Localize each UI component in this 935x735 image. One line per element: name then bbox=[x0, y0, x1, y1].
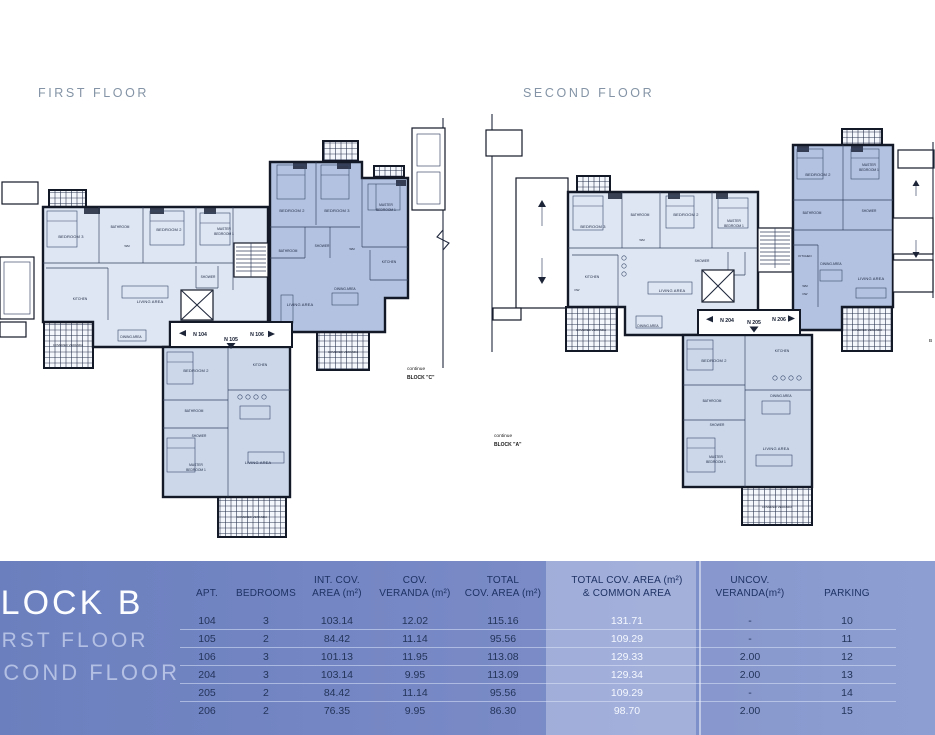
adjacent-structures-right bbox=[412, 118, 449, 368]
partial-label: B bbox=[929, 338, 932, 344]
room-label: BEDROOM 2 bbox=[279, 208, 305, 213]
table-cell: 131.71 bbox=[552, 608, 702, 630]
adjacent-structures-left bbox=[486, 114, 568, 352]
room-label: MASTER bbox=[862, 163, 876, 167]
veranda-hatch bbox=[374, 166, 404, 177]
table-cell: 113.08 bbox=[454, 648, 552, 666]
room-label: DINING AREA bbox=[334, 287, 356, 291]
room-label: BEDROOM 2 bbox=[183, 368, 209, 373]
room-label: LIVING AREA bbox=[137, 299, 164, 304]
room-label: MASTER bbox=[727, 219, 741, 223]
svg-text:BLOCK "C": BLOCK "C" bbox=[407, 375, 435, 381]
room-label: BATHROOM bbox=[279, 249, 298, 253]
summary-table-head-row: APT.BEDROOMSINT. COV.AREA (m²)COV.VERAND… bbox=[180, 574, 896, 608]
room-label: WM bbox=[349, 247, 355, 251]
room-label: WM bbox=[639, 238, 645, 242]
table-cell: 9.95 bbox=[376, 702, 454, 720]
apartment-entry-label: N 104 bbox=[193, 332, 207, 338]
veranda-hatch bbox=[49, 190, 86, 207]
table-cell: 98.70 bbox=[552, 702, 702, 720]
room-label: BATHROOM bbox=[803, 211, 822, 215]
table-cell: 3 bbox=[234, 608, 298, 630]
room-label: MASTER bbox=[709, 455, 723, 459]
room-label: BEDROOM 1 bbox=[859, 168, 879, 172]
table-cell: 2 bbox=[234, 684, 298, 702]
room-label: COVERED VERANDA bbox=[328, 350, 358, 354]
table-cell: 12.02 bbox=[376, 608, 454, 630]
room-label: BEDROOM 1 bbox=[186, 468, 206, 472]
room-label: COVERED VERANDA bbox=[53, 343, 83, 347]
table-cell: 84.42 bbox=[298, 684, 376, 702]
apartment-entry-label: N 105 bbox=[224, 337, 238, 343]
room-label: KITCHEN bbox=[798, 254, 811, 258]
room-label: SHOWER bbox=[201, 275, 216, 279]
column-header: UNCOV.VERANDA(m²) bbox=[702, 574, 798, 608]
room-label: COVERED VERANDA bbox=[237, 515, 267, 519]
veranda-hatch bbox=[323, 141, 358, 161]
table-row: 1043103.1412.02115.16131.71-10 bbox=[180, 608, 896, 630]
second-floor-title: SECOND FLOOR bbox=[523, 87, 654, 100]
room-label: BEDROOM 1 bbox=[214, 232, 234, 236]
apartment-206: BEDROOM 2 MASTER BEDROOM 1 BATHROOM SHOW… bbox=[793, 129, 893, 351]
apartment-entry-label: N 204 bbox=[720, 318, 734, 324]
column-header: TOTAL COV. AREA (m²)& COMMON AREA bbox=[552, 574, 702, 608]
column-header: PARKING bbox=[798, 574, 896, 608]
table-row: 205284.4211.1495.56109.29-14 bbox=[180, 684, 896, 702]
room-label: COVERED VERANDA bbox=[576, 328, 606, 332]
block-title: BLOCK B bbox=[0, 586, 143, 620]
adjacent-structures-right: B bbox=[893, 142, 934, 344]
table-row: 105284.4211.1495.56109.29-11 bbox=[180, 630, 896, 648]
summary-table: APT.BEDROOMSINT. COV.AREA (m²)COV.VERAND… bbox=[180, 574, 896, 719]
summary-band: BLOCK B FIRST FLOOR SECOND FLOOR APT.BED… bbox=[0, 561, 935, 735]
first-floor-plan: BEDROOM 3 BATHROOM WM BEDROOM 2 MASTER B… bbox=[0, 110, 470, 555]
table-cell: 15 bbox=[798, 702, 896, 720]
continue-note-block-a: continue BLOCK "A" bbox=[494, 433, 522, 448]
room-label: WM bbox=[802, 284, 808, 288]
second-floor-plan: continue BLOCK "A" BEDROOM 3 BATHROOM WM… bbox=[465, 110, 935, 555]
room-label: KITCHEN bbox=[73, 297, 88, 301]
room-label: BEDROOM 3 bbox=[324, 208, 350, 213]
table-cell: 2 bbox=[234, 630, 298, 648]
table-cell: 113.09 bbox=[454, 666, 552, 684]
room-label: LIVING AREA bbox=[245, 460, 272, 465]
apartment-entry-label: N 106 bbox=[250, 332, 264, 338]
table-cell: 106 bbox=[180, 648, 234, 666]
room-label: BEDROOM 1 bbox=[376, 208, 396, 212]
table-cell: 103.14 bbox=[298, 608, 376, 630]
column-header: APT. bbox=[180, 574, 234, 608]
table-cell: 129.34 bbox=[552, 666, 702, 684]
table-cell: 115.16 bbox=[454, 608, 552, 630]
first-floor-title: FIRST FLOOR bbox=[38, 87, 149, 100]
room-label: BEDROOM 2 bbox=[673, 212, 699, 217]
room-label: LIVING AREA bbox=[763, 446, 790, 451]
veranda-hatch bbox=[577, 176, 610, 192]
table-cell: 109.29 bbox=[552, 630, 702, 648]
room-label: BATHROOM bbox=[703, 399, 722, 403]
room-label: SHOWER bbox=[710, 423, 725, 427]
column-header: INT. COV.AREA (m²) bbox=[298, 574, 376, 608]
room-label: DW bbox=[575, 288, 580, 292]
column-header: COV.VERANDA (m²) bbox=[376, 574, 454, 608]
apartment-205: BEDROOM 2 KITCHEN BATHROOM SHOWER MASTER… bbox=[683, 335, 812, 525]
table-cell: - bbox=[702, 608, 798, 630]
room-label: BEDROOM 3 bbox=[58, 234, 84, 239]
room-label: BATHROOM bbox=[111, 225, 130, 229]
room-label: BEDROOM 2 bbox=[805, 172, 831, 177]
room-label: DW bbox=[803, 292, 808, 296]
table-cell: 204 bbox=[180, 666, 234, 684]
column-header: BEDROOMS bbox=[234, 574, 298, 608]
table-cell: 13 bbox=[798, 666, 896, 684]
adjacent-structures-left bbox=[0, 182, 38, 337]
svg-text:continue: continue bbox=[407, 366, 425, 372]
table-cell: 95.56 bbox=[454, 684, 552, 702]
summary-floor-second: SECOND FLOOR bbox=[0, 662, 180, 684]
room-label: KITCHEN bbox=[775, 349, 790, 353]
room-label: BATHROOM bbox=[185, 409, 204, 413]
summary-floor-first: FIRST FLOOR bbox=[0, 630, 148, 651]
table-cell: 101.13 bbox=[298, 648, 376, 666]
room-label: BEDROOM 1 bbox=[724, 224, 744, 228]
table-cell: 11 bbox=[798, 630, 896, 648]
table-cell: 105 bbox=[180, 630, 234, 648]
apartment-entry-label: N 206 bbox=[772, 317, 786, 323]
stair-direction-arrow-icon bbox=[913, 252, 920, 258]
room-label: DINING AREA bbox=[637, 324, 659, 328]
table-cell: 2.00 bbox=[702, 702, 798, 720]
summary-table-body: 1043103.1412.02115.16131.71-10105284.421… bbox=[180, 608, 896, 719]
room-label: SHOWER bbox=[862, 209, 877, 213]
room-label: BEDROOM 3 bbox=[580, 224, 606, 229]
room-label: SHOWER bbox=[192, 434, 207, 438]
table-cell: - bbox=[702, 630, 798, 648]
table-cell: 14 bbox=[798, 684, 896, 702]
table-cell: 129.33 bbox=[552, 648, 702, 666]
room-label: MASTER bbox=[379, 203, 393, 207]
table-cell: - bbox=[702, 684, 798, 702]
table-row: 2043103.149.95113.09129.342.0013 bbox=[180, 666, 896, 684]
room-label: DINING AREA bbox=[120, 335, 142, 339]
room-label: BEDROOM 2 bbox=[156, 227, 182, 232]
table-cell: 86.30 bbox=[454, 702, 552, 720]
svg-text:BLOCK "A": BLOCK "A" bbox=[494, 442, 522, 448]
table-cell: 3 bbox=[234, 666, 298, 684]
table-row: 206276.359.9586.3098.702.0015 bbox=[180, 702, 896, 720]
table-cell: 104 bbox=[180, 608, 234, 630]
room-label: DINING AREA bbox=[820, 262, 842, 266]
room-label: COVERED VERANDA bbox=[762, 505, 792, 509]
room-label: MASTER bbox=[217, 227, 231, 231]
room-label: DINING AREA bbox=[770, 394, 792, 398]
table-cell: 84.42 bbox=[298, 630, 376, 648]
table-cell: 109.29 bbox=[552, 684, 702, 702]
room-label: KITCHEN bbox=[253, 363, 268, 367]
table-cell: 206 bbox=[180, 702, 234, 720]
table-row: 1063101.1311.95113.08129.332.0012 bbox=[180, 648, 896, 666]
room-label: COVERED VERANDA bbox=[852, 328, 882, 332]
table-cell: 9.95 bbox=[376, 666, 454, 684]
room-label: BEDROOM 1 bbox=[706, 460, 726, 464]
room-label: LIVING AREA bbox=[287, 302, 314, 307]
room-label: KITCHEN bbox=[382, 260, 397, 264]
svg-text:continue: continue bbox=[494, 433, 512, 439]
column-header: TOTALCOV. AREA (m²) bbox=[454, 574, 552, 608]
table-cell: 103.14 bbox=[298, 666, 376, 684]
stair-direction-arrow-icon bbox=[913, 180, 920, 186]
table-cell: 205 bbox=[180, 684, 234, 702]
room-label: LIVING AREA bbox=[858, 276, 885, 281]
table-cell: 11.95 bbox=[376, 648, 454, 666]
room-label: SHOWER bbox=[315, 244, 330, 248]
room-label: KITCHEN bbox=[585, 275, 600, 279]
table-cell: 3 bbox=[234, 648, 298, 666]
brochure-page: FIRST FLOOR SECOND FLOOR bbox=[0, 0, 935, 735]
room-label: BEDROOM 2 bbox=[701, 358, 727, 363]
veranda-hatch bbox=[842, 129, 882, 145]
continue-note-block-c: continue BLOCK "C" bbox=[407, 366, 435, 381]
table-cell: 12 bbox=[798, 648, 896, 666]
room-label: BATHROOM bbox=[631, 213, 650, 217]
room-label: LIVING AREA bbox=[659, 288, 686, 293]
room-label: SHOWER bbox=[695, 259, 710, 263]
table-cell: 76.35 bbox=[298, 702, 376, 720]
table-cell: 2.00 bbox=[702, 648, 798, 666]
table-cell: 2.00 bbox=[702, 666, 798, 684]
table-cell: 2 bbox=[234, 702, 298, 720]
table-cell: 11.14 bbox=[376, 684, 454, 702]
apartment-105: BEDROOM 2 KITCHEN BATHROOM SHOWER MASTER… bbox=[163, 347, 290, 537]
table-cell: 10 bbox=[798, 608, 896, 630]
room-label: WM bbox=[124, 244, 130, 248]
room-label: MASTER bbox=[189, 463, 203, 467]
table-cell: 11.14 bbox=[376, 630, 454, 648]
table-cell: 95.56 bbox=[454, 630, 552, 648]
apartment-entry-label: N 205 bbox=[747, 320, 761, 326]
